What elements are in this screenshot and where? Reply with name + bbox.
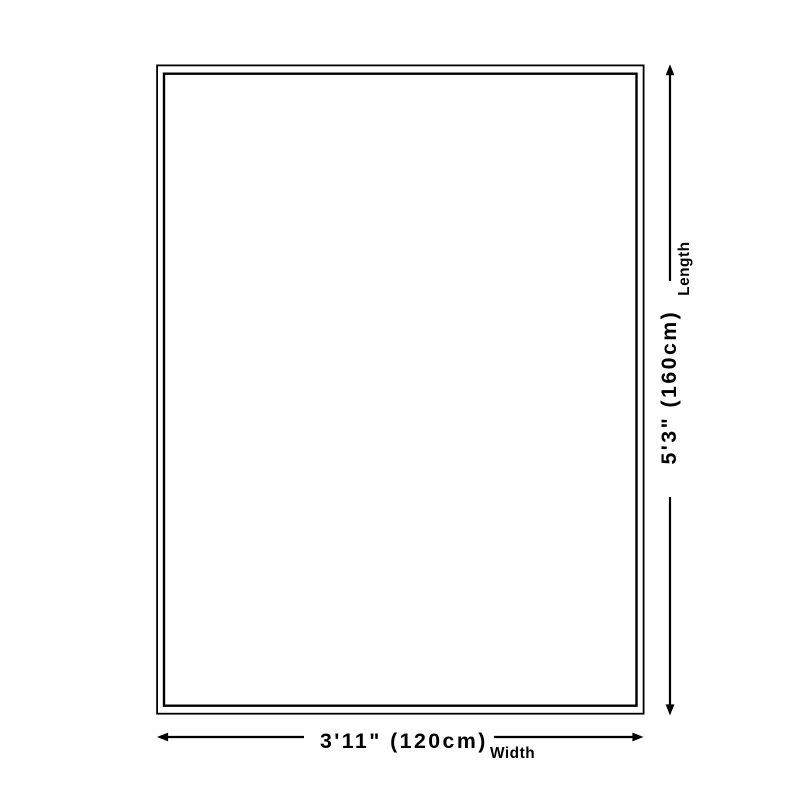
svg-text:Width: Width xyxy=(490,745,535,762)
svg-text:3'11" (120cm): 3'11" (120cm) xyxy=(320,729,488,753)
svg-text:Length: Length xyxy=(676,242,693,296)
svg-text:5'3" (160cm): 5'3" (160cm) xyxy=(657,310,681,465)
